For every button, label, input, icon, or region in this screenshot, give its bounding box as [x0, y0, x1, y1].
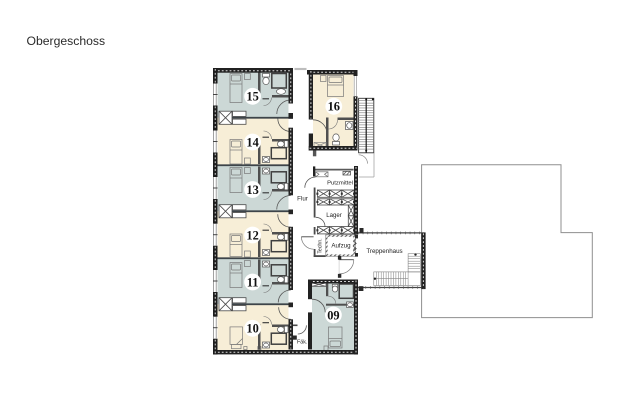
- svg-text:16: 16: [328, 100, 340, 114]
- svg-text:Putzmittel: Putzmittel: [327, 180, 353, 186]
- svg-text:Lager: Lager: [326, 212, 342, 219]
- svg-text:Flur: Flur: [297, 196, 308, 203]
- svg-text:Techn.: Techn.: [318, 238, 324, 253]
- svg-text:10: 10: [246, 322, 258, 336]
- svg-text:15: 15: [246, 90, 258, 104]
- svg-text:11: 11: [247, 275, 259, 289]
- svg-text:13: 13: [246, 183, 258, 197]
- svg-text:14: 14: [246, 135, 258, 149]
- svg-text:Fäk.: Fäk.: [297, 340, 307, 346]
- svg-text:Obergeschoss: Obergeschoss: [27, 34, 106, 48]
- svg-text:12: 12: [246, 228, 258, 242]
- svg-text:Aufzug: Aufzug: [331, 243, 351, 250]
- svg-text:Treppenhaus: Treppenhaus: [366, 248, 402, 255]
- svg-text:09: 09: [327, 308, 339, 322]
